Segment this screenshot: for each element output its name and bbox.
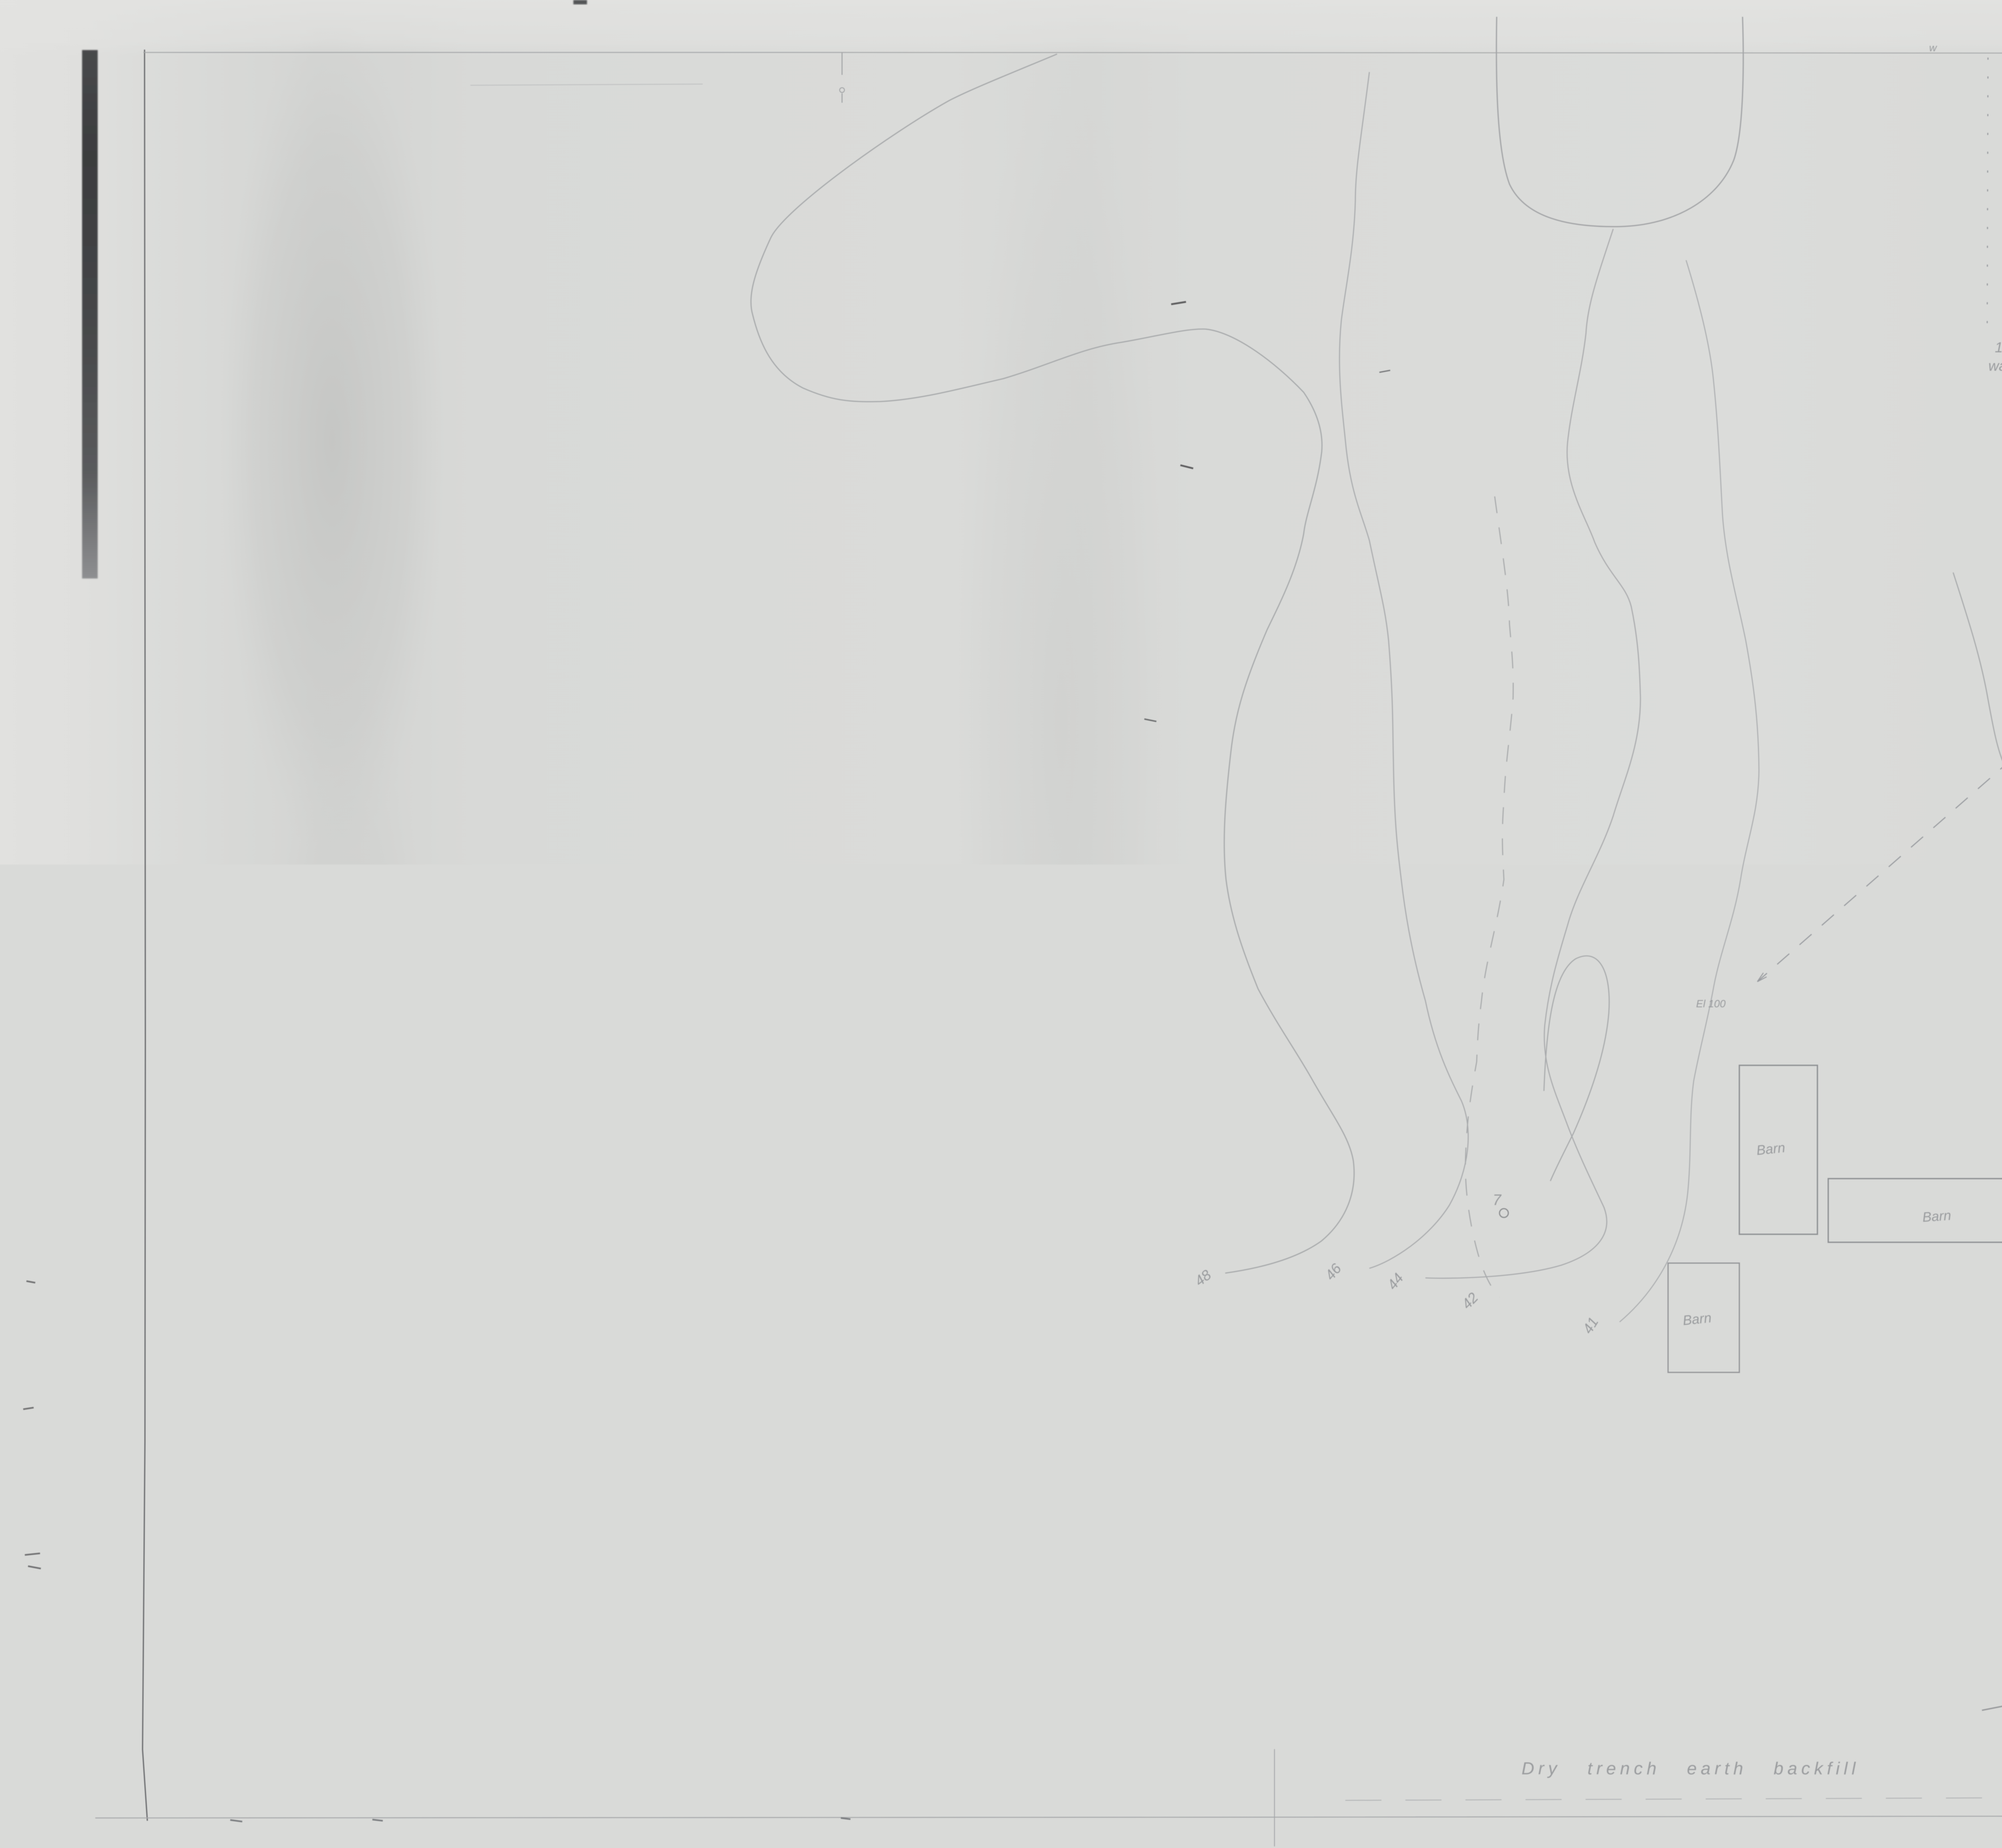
svg-text:7: 7: [1493, 1192, 1502, 1209]
svg-text:w: w: [1929, 42, 1938, 54]
svg-text:Barn: Barn: [1922, 1208, 1952, 1225]
svg-text:El 100: El 100: [1696, 998, 1726, 1010]
svg-text:6: 6: [1762, 745, 1771, 762]
svg-text:1½″ galv. iron pipe: 1½″ galv. iron pipe: [1995, 339, 2002, 356]
svg-text:water line on surface.: water line on surface.: [1988, 358, 2002, 374]
svg-text:Barn: Barn: [1756, 1140, 1786, 1158]
svg-text:Dry trench earth backfill: Dry trench earth backfill: [1522, 1759, 1859, 1778]
svg-text:Barn: Barn: [1682, 1310, 1712, 1328]
